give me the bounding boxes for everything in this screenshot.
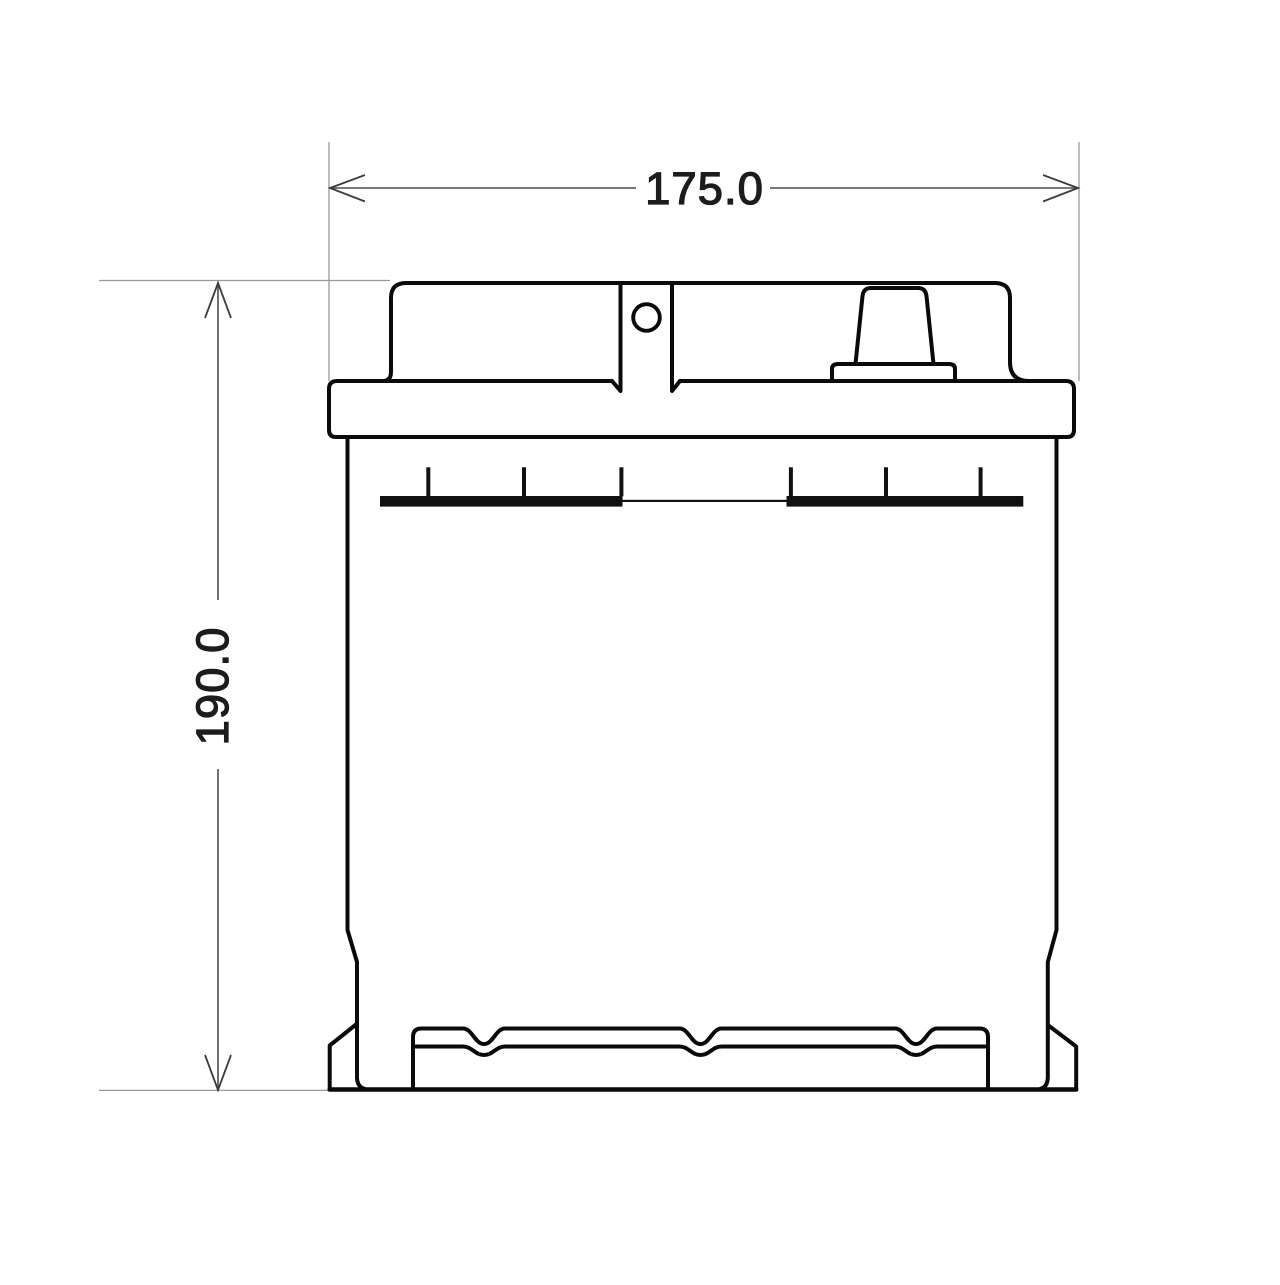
- svg-text:175.0: 175.0: [645, 163, 764, 214]
- svg-text:190.0: 190.0: [187, 627, 238, 746]
